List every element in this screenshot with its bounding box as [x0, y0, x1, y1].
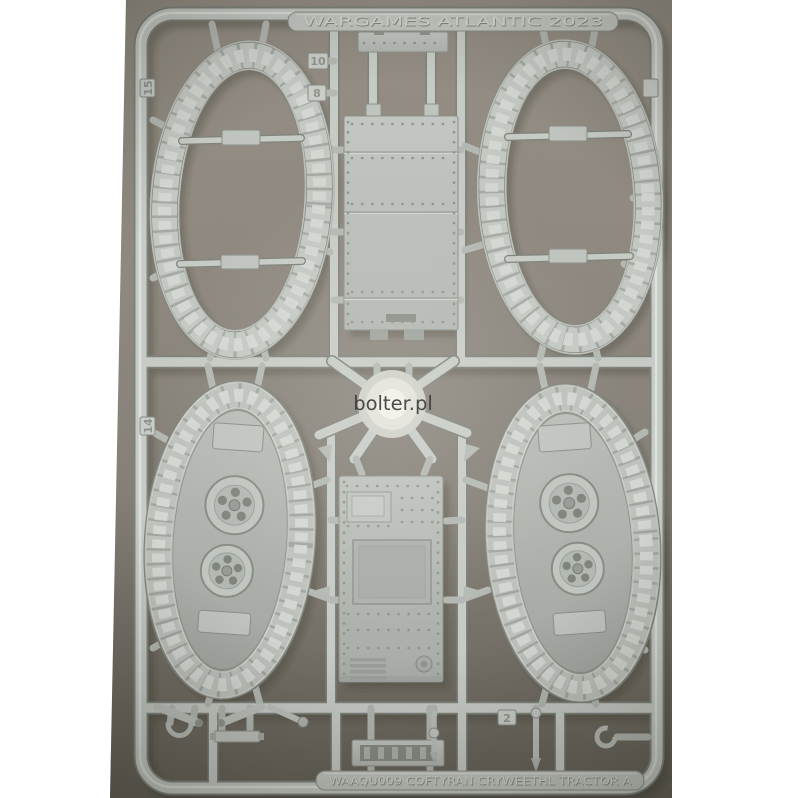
- watermark-text: bolter.pl: [353, 392, 433, 415]
- sprue-photo: 15 14 10 8 2: [0, 0, 798, 798]
- photo-canvas: 15 14 10 8 2: [0, 0, 798, 798]
